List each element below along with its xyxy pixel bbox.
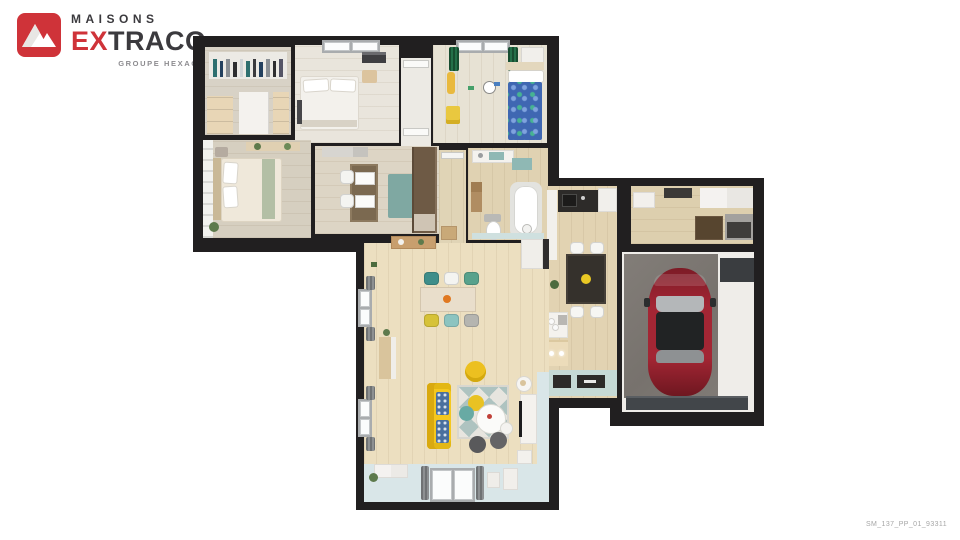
living-low-sideboard	[374, 464, 408, 478]
garage-wall-panel	[720, 258, 754, 282]
kitchen-chair-3	[570, 306, 584, 318]
master-pillow-top	[222, 162, 238, 185]
utility-washer-door	[727, 222, 751, 238]
living-cabinet-plant	[383, 329, 390, 336]
car-mirror-right	[710, 298, 716, 307]
car-hood-highlight	[654, 274, 706, 286]
bedroom1-pillow-left	[303, 78, 330, 93]
bedroom1-pillow-right	[330, 78, 357, 92]
kitchen-sink	[562, 194, 577, 207]
living-candle-unit	[487, 472, 500, 488]
master-pillow-bottom	[222, 186, 238, 209]
kids-bed-headboard	[506, 62, 544, 70]
living-tile-strip-right	[537, 372, 549, 464]
bay-curtain-left	[421, 466, 429, 500]
garage-door	[626, 396, 748, 410]
kitchen-counter-sink-slot	[584, 380, 596, 383]
floorplan-render	[0, 0, 960, 540]
bedroom1-bench	[297, 100, 302, 124]
dressing-drawers-right	[273, 92, 289, 134]
living-pouf-dark-2	[490, 432, 507, 449]
kitchen-hob	[553, 375, 571, 388]
kitchen-chair-1	[570, 242, 584, 254]
kids-shelf	[521, 47, 544, 63]
living-tv-console	[520, 394, 537, 444]
rug-cushion-teal	[459, 406, 474, 421]
living-band-plant	[369, 473, 378, 482]
entry-closet	[521, 239, 543, 269]
kids-bed-blue-duvet	[508, 82, 542, 140]
master-bed-headboard	[213, 158, 221, 220]
island-light-4	[549, 351, 554, 356]
kitchen-chair-2	[590, 242, 604, 254]
sideboard-vase	[398, 239, 404, 245]
living-side-cabinet	[379, 337, 396, 379]
hallway-console	[441, 226, 457, 240]
living-window-left-2	[358, 399, 372, 437]
living-yellow-pouf	[465, 361, 486, 382]
dining-table-deco	[443, 295, 451, 303]
car-roof	[656, 312, 704, 350]
living-curtain-2b	[366, 437, 375, 451]
car-rear-window	[656, 350, 704, 363]
car-mirror-left	[644, 298, 650, 307]
living-wall-plant	[371, 262, 377, 267]
office-chair-2	[340, 194, 354, 208]
kitchen-chair-4	[590, 306, 604, 318]
dining-chair-green	[464, 272, 479, 285]
plan-reference-code: SM_137_PP_01_93311	[866, 521, 947, 528]
bathroom-faucet	[478, 153, 483, 158]
kids-toy-box	[446, 106, 460, 124]
kitchen-plant	[550, 280, 559, 289]
kitchen-yellow-bowl	[581, 274, 591, 284]
sofa-cushion-1	[436, 392, 449, 415]
living-curtain-2a	[366, 386, 375, 400]
living-pouf-dark-1	[469, 436, 486, 453]
living-floor-lamp-shade	[520, 380, 526, 386]
bathroom-cabinet	[471, 182, 482, 212]
dining-chair-yellow	[424, 314, 439, 327]
office-desk-paper-1	[355, 172, 375, 185]
island-light-5	[559, 351, 564, 356]
kids-window	[456, 40, 510, 53]
office-top-shelf	[322, 147, 368, 157]
living-bay-window	[430, 468, 475, 502]
office-wardrobe-open	[414, 214, 435, 231]
utility-cabinet-right	[700, 188, 753, 208]
kids-curtain-left	[449, 47, 459, 71]
hall-door-top	[403, 60, 429, 68]
hall-door-bottom	[403, 128, 429, 136]
entry-closet-dark-side	[543, 239, 549, 269]
kitchen-faucet	[581, 196, 585, 200]
hallway-door	[441, 152, 464, 159]
dressing-dresser-center	[239, 92, 269, 134]
dining-chair-white	[444, 272, 459, 285]
sofa-cushion-2	[436, 420, 449, 443]
dressing-drawers-left	[207, 96, 233, 134]
master-green-runner	[262, 159, 275, 219]
utility-ceiling-vent	[664, 188, 692, 198]
bedroom1-bed-throw	[301, 120, 357, 127]
master-plant	[209, 222, 219, 232]
bathroom-teal-mat	[512, 158, 532, 170]
sideboard-plant	[418, 239, 424, 245]
car-windshield	[656, 296, 704, 312]
dining-chair-teal	[424, 272, 439, 285]
master-nightstand	[215, 147, 228, 157]
bedroom1-ceiling-vent	[362, 52, 386, 63]
island-toaster	[558, 315, 567, 325]
bathroom-vanity-mat	[489, 152, 504, 160]
living-window-left-1	[358, 289, 372, 327]
coffee-table-mug	[487, 414, 492, 419]
kids-giraffe-toy	[447, 72, 455, 94]
living-band-cabinet	[503, 468, 518, 490]
island-egg-2	[552, 324, 559, 331]
living-white-box	[517, 450, 532, 464]
kitchen-cabinet-right	[598, 188, 617, 212]
living-curtain-1a	[366, 276, 375, 290]
utility-cabinet-left	[633, 192, 655, 208]
dining-chair-lightteal	[444, 314, 459, 327]
kids-toy-blue	[494, 82, 500, 86]
kids-toy-green	[468, 86, 474, 90]
living-tv-screen	[519, 401, 522, 437]
office-desk-paper-2	[355, 195, 375, 208]
dining-chair-gray	[464, 314, 479, 327]
utility-counter	[695, 216, 723, 240]
bay-curtain-right	[476, 466, 484, 500]
office-teal-rug	[388, 174, 414, 218]
master-shelf-plant-1	[254, 143, 261, 150]
dressing-hanging-clothes	[209, 52, 287, 79]
living-curtain-1b	[366, 327, 375, 341]
master-shelf-plant-2	[284, 143, 291, 150]
bedroom1-nightstand	[362, 70, 377, 83]
office-chair-1	[340, 170, 354, 184]
